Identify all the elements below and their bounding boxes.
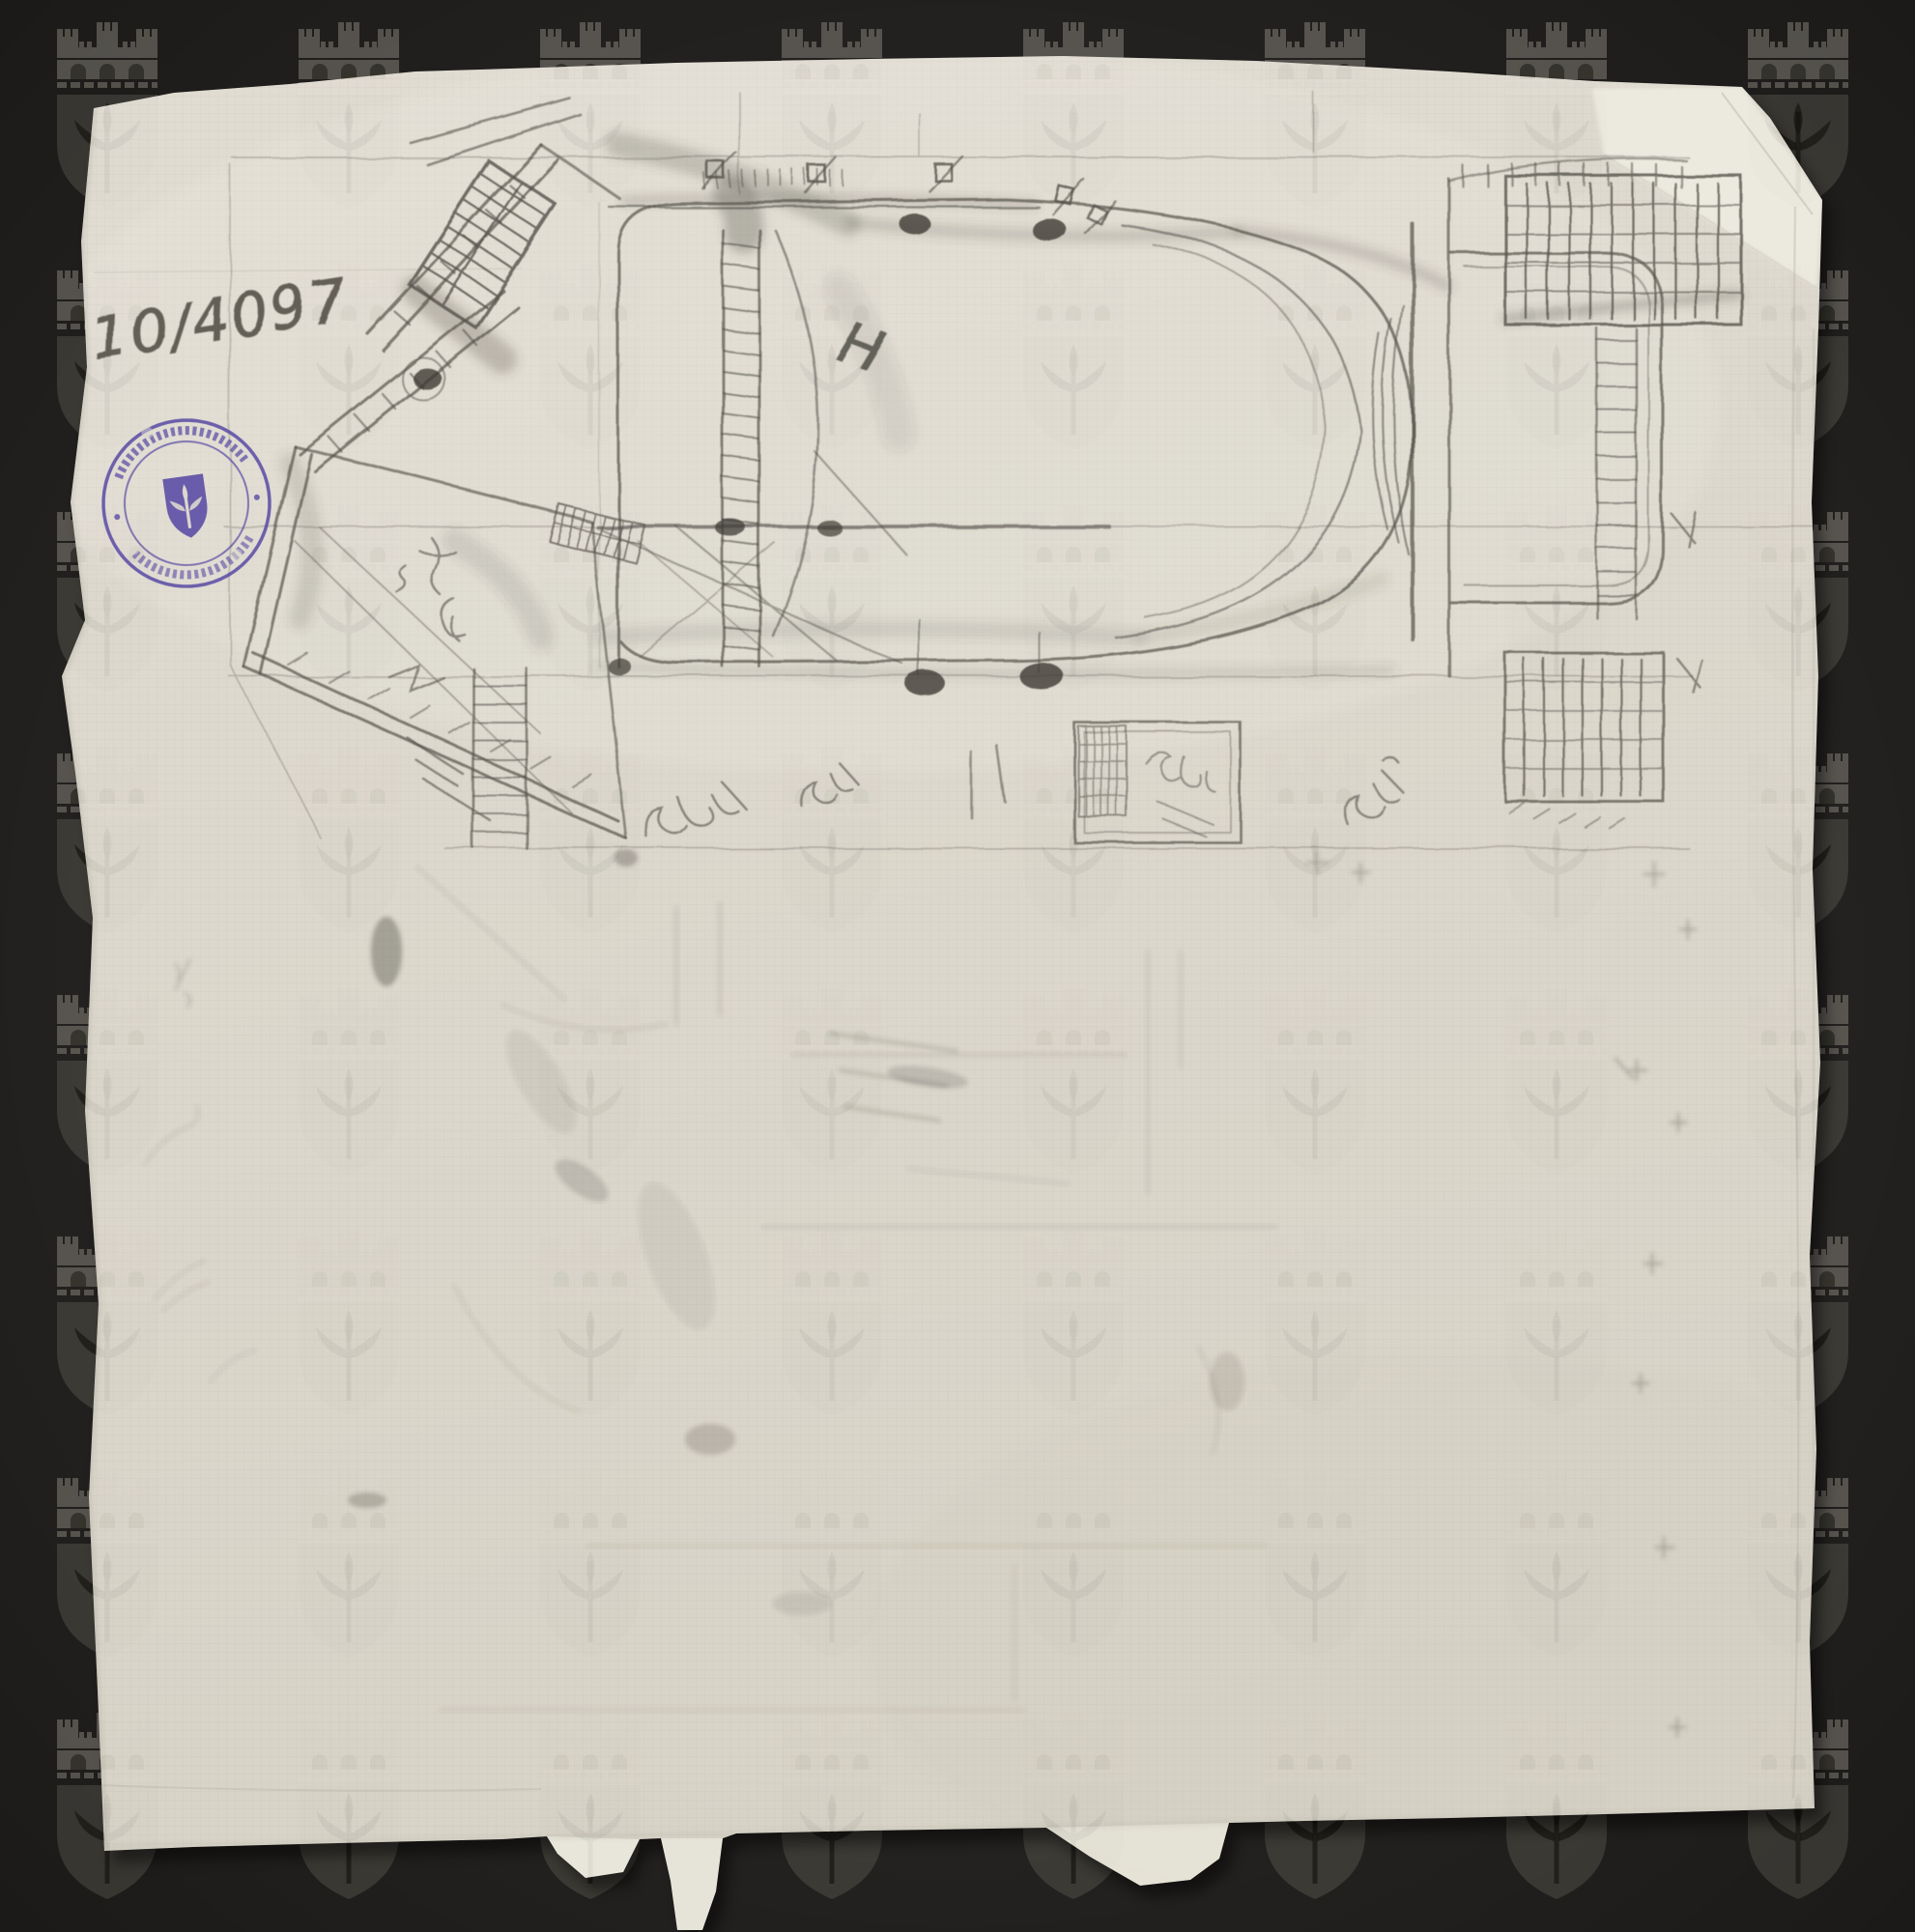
watermark-crest-icon <box>782 1713 882 1899</box>
watermark-crest-icon <box>57 747 157 933</box>
watermark-crest-icon <box>299 1713 399 1899</box>
watermark-crest-icon <box>57 1230 157 1416</box>
watermark-crest-icon <box>1506 1230 1607 1416</box>
watermark-crest-icon <box>1023 988 1124 1175</box>
watermark-crest-icon <box>540 1713 641 1899</box>
watermark-crest-icon <box>1023 264 1124 450</box>
archival-scan: H 10/4097 <box>0 0 1915 1932</box>
watermark-crest-icon <box>1265 988 1365 1175</box>
watermark-crest-icon <box>540 1471 641 1658</box>
watermark-crest-icon <box>299 1230 399 1416</box>
watermark-crest-icon <box>299 22 399 209</box>
watermark-crest-icon <box>1748 505 1848 692</box>
watermark-crest-icon <box>782 988 882 1175</box>
watermark-crest-icon <box>1023 1713 1124 1899</box>
watermark-crest-icon <box>1023 1471 1124 1658</box>
watermark-crest-icon <box>299 747 399 933</box>
watermark-crest-icon <box>1265 1230 1365 1416</box>
watermark-crest-icon <box>299 988 399 1175</box>
watermark-crest-icon <box>1748 988 1848 1175</box>
watermark-crest-icon <box>57 1471 157 1658</box>
watermark-crest-icon <box>782 1471 882 1658</box>
watermark-crest-icon <box>1748 1713 1848 1899</box>
watermark-crest-icon <box>782 1230 882 1416</box>
watermark-crest-icon <box>540 22 641 209</box>
watermark-crest-icon <box>540 264 641 450</box>
watermark-crest-icon <box>1748 747 1848 933</box>
watermark-crest-icon <box>1506 505 1607 692</box>
watermark-crest-icon <box>782 22 882 209</box>
watermark-crest-icon <box>57 988 157 1175</box>
watermark-crest-icon <box>1506 1713 1607 1899</box>
watermark-crest-icon <box>57 1713 157 1899</box>
watermark-crest-icon <box>1748 1471 1848 1658</box>
watermark-crest-icon <box>1265 264 1365 450</box>
watermark-crest-icon <box>1265 22 1365 209</box>
watermark-crest-icon <box>57 22 157 209</box>
scan-canvas: H 10/4097 <box>0 0 1915 1932</box>
watermark-crest-icon <box>540 1230 641 1416</box>
watermark-crest-icon <box>1748 264 1848 450</box>
watermark-crest-icon <box>1506 1471 1607 1658</box>
watermark-crest-icon <box>1748 22 1848 209</box>
watermark-crest-icon <box>1265 1713 1365 1899</box>
watermark-crest-icon <box>1265 747 1365 933</box>
watermark-crest-icon <box>1265 1471 1365 1658</box>
watermark-crest-icon <box>1023 22 1124 209</box>
watermark-crest-icon <box>1506 988 1607 1175</box>
watermark-crest-icon <box>1506 22 1607 209</box>
watermark-crest-icon <box>1023 1230 1124 1416</box>
watermark-crest-icon <box>1506 747 1607 933</box>
watermark-crest-icon <box>1748 1230 1848 1416</box>
